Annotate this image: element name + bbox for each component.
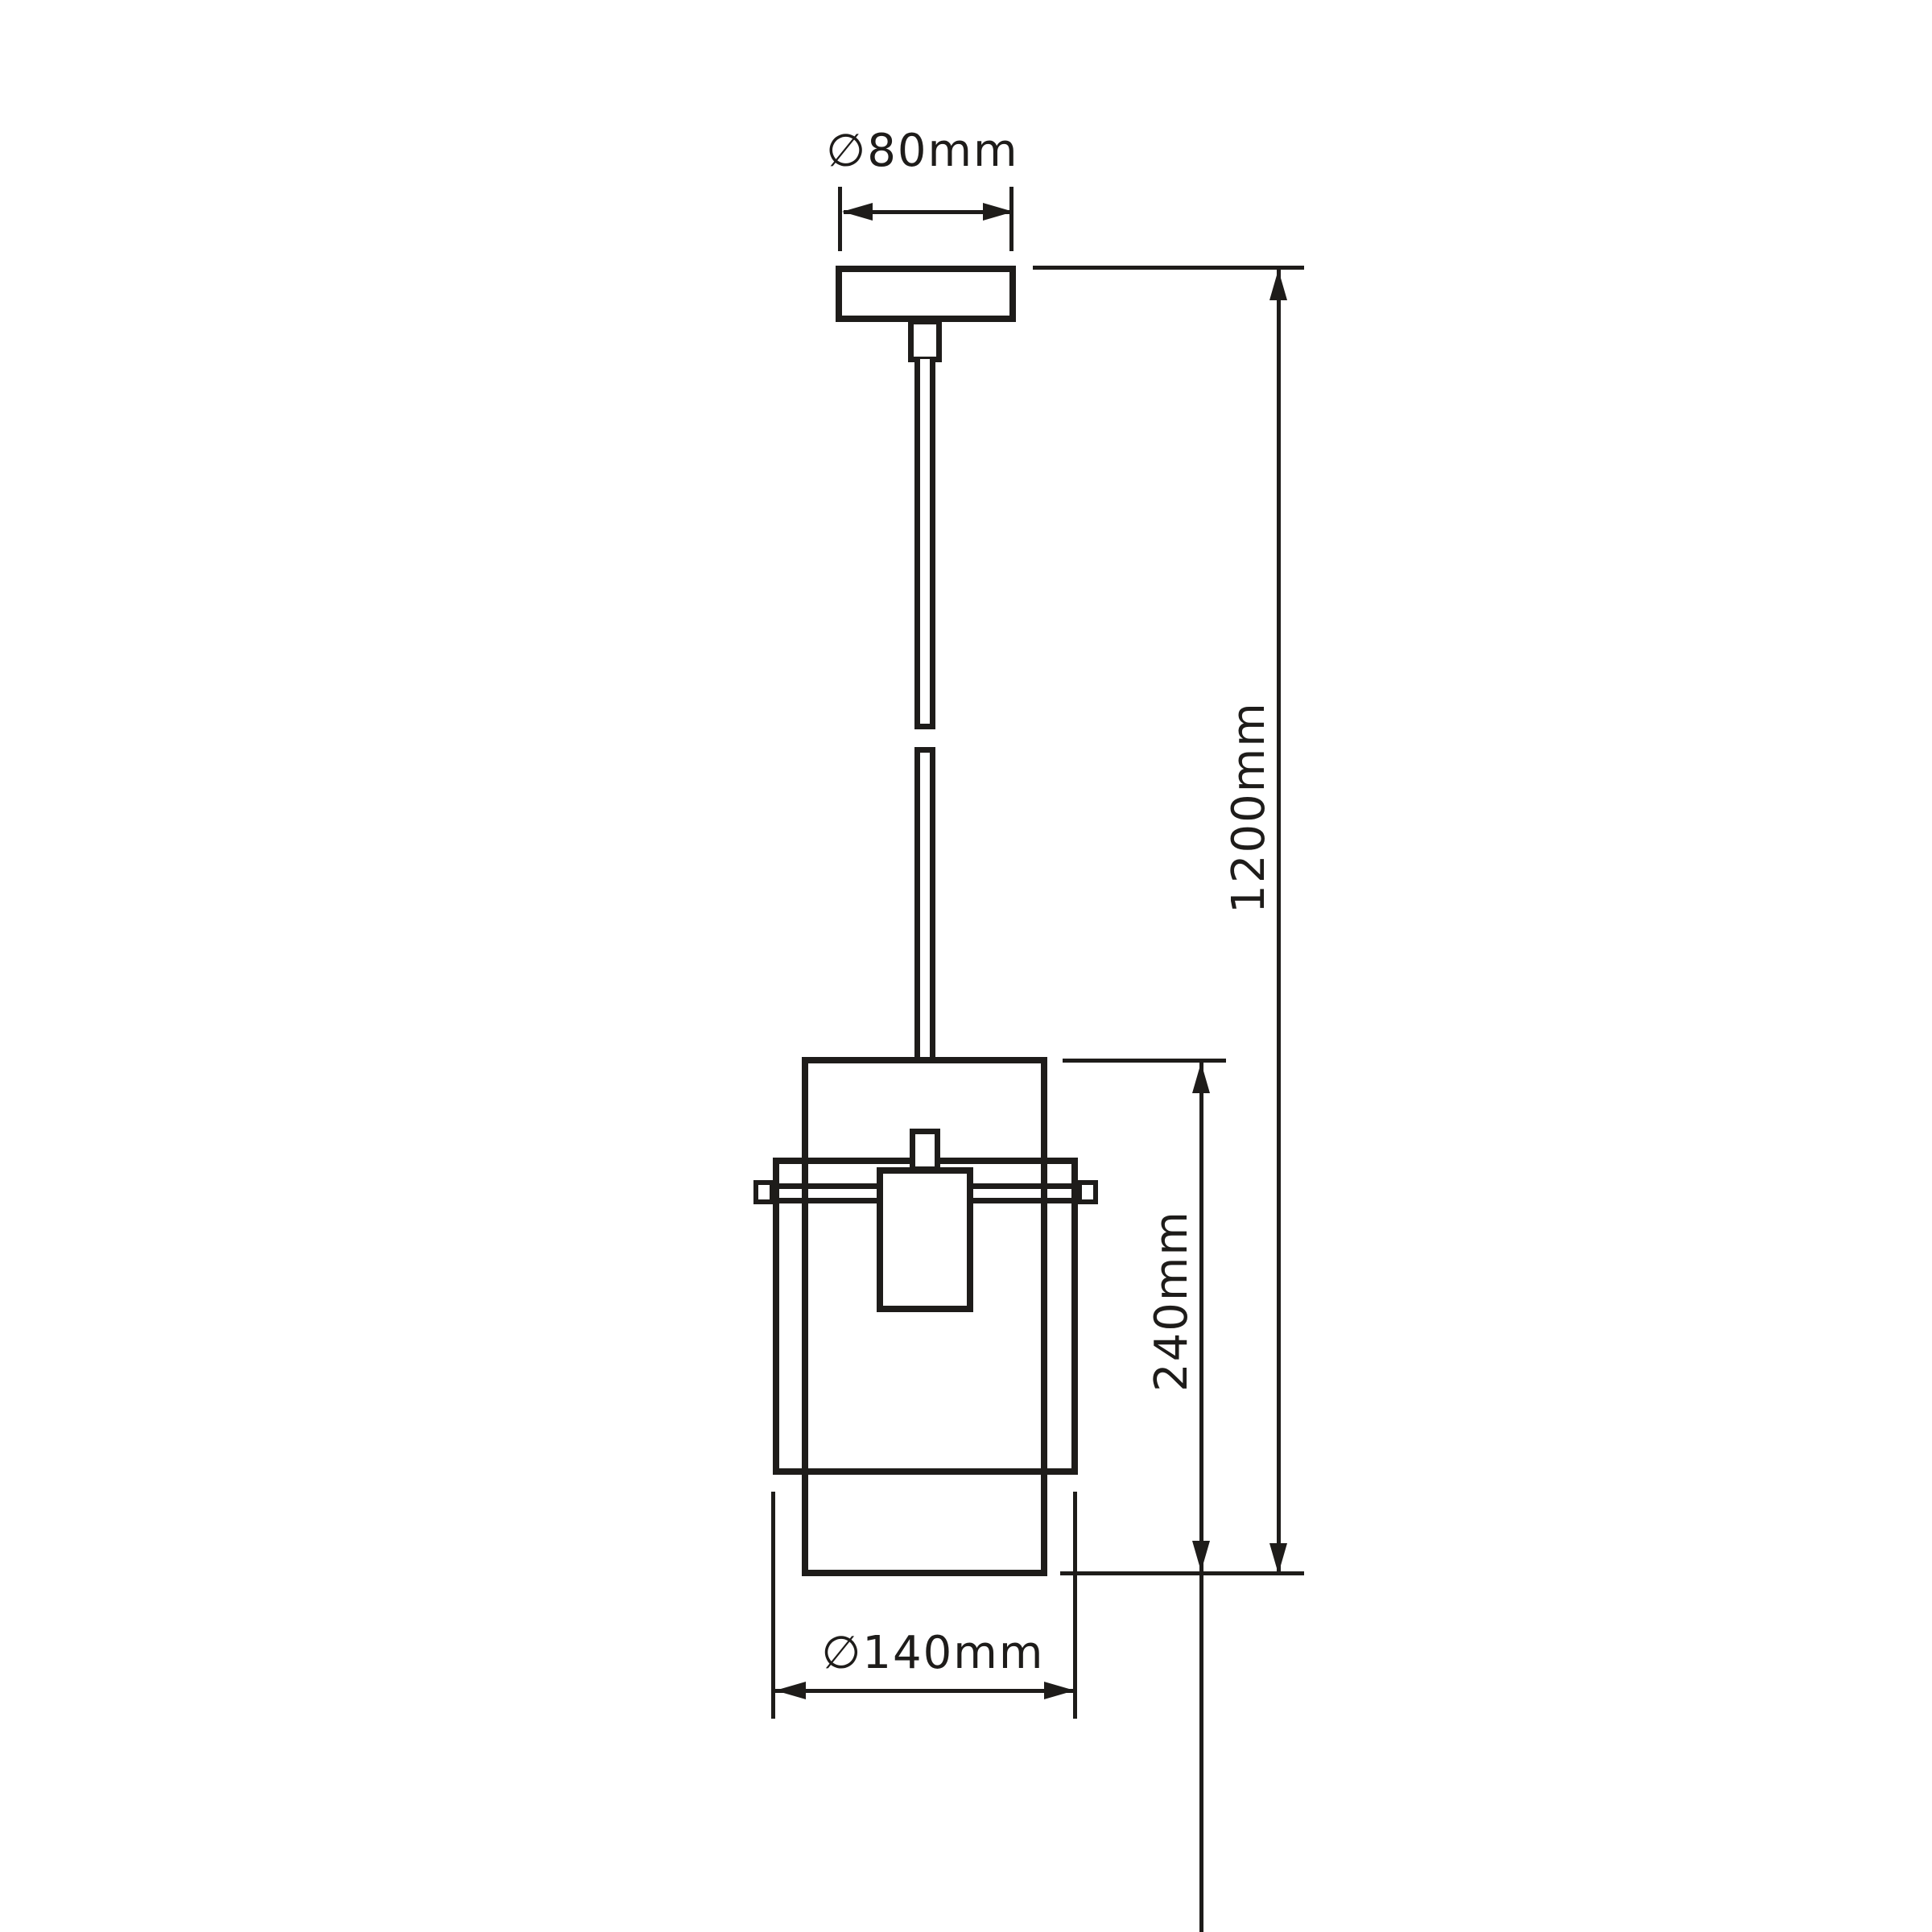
arrowhead-left-icon xyxy=(775,1682,806,1699)
arrowhead-down-icon xyxy=(1269,1543,1287,1574)
arrowhead-right-icon xyxy=(1044,1682,1075,1699)
arrowhead-left-icon xyxy=(842,203,873,221)
ring-tab-left xyxy=(753,1180,774,1204)
arrowhead-right-icon xyxy=(983,203,1013,221)
stem-connector xyxy=(908,319,942,362)
arrowhead-up-icon xyxy=(1192,1063,1210,1093)
drop-dim-extension-top xyxy=(1033,266,1304,270)
diameter-dim-line xyxy=(775,1689,1073,1693)
ring-tab-right xyxy=(1077,1180,1098,1204)
height-dim-line xyxy=(1199,1063,1203,1932)
arrowhead-down-icon xyxy=(1192,1541,1210,1571)
drop-length-label: 1200mm xyxy=(1224,687,1275,928)
socket-body xyxy=(877,1167,973,1312)
arrowhead-up-icon xyxy=(1269,270,1287,300)
drop-dim-line xyxy=(1277,270,1281,1574)
socket-holder xyxy=(910,1129,940,1172)
bottom-extension-line xyxy=(1060,1571,1304,1575)
suspension-rod-upper xyxy=(914,359,935,729)
canopy-diameter-label: ∅80mm xyxy=(762,126,1084,177)
technical-drawing-canvas: ∅80mm 1200mm 240mm ∅140mm xyxy=(0,0,1932,1932)
ceiling-canopy xyxy=(836,266,1016,322)
shade-diameter-label: ∅140mm xyxy=(772,1628,1094,1679)
shade-height-label: 240mm xyxy=(1146,1180,1198,1422)
